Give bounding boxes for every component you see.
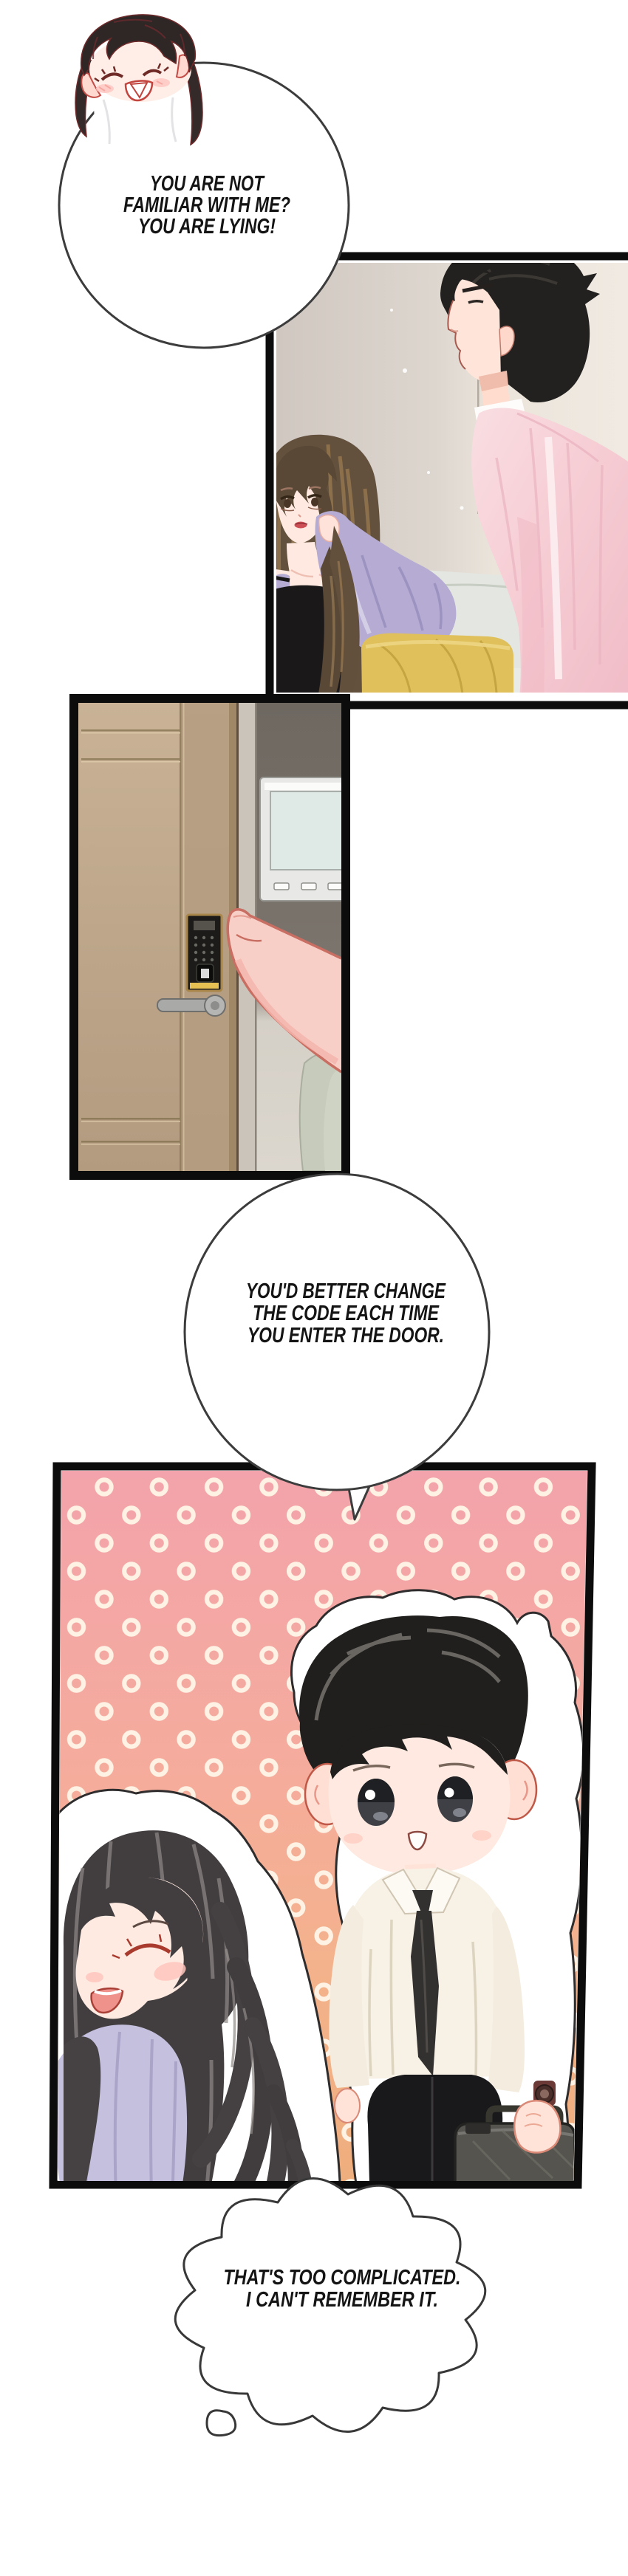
svg-text:THAT'S TOO COMPLICATED.: THAT'S TOO COMPLICATED.: [224, 2266, 461, 2290]
svg-text:YOU ARE LYING!: YOU ARE LYING!: [138, 215, 276, 238]
svg-text:THE CODE EACH TIME: THE CODE EACH TIME: [253, 1302, 440, 1325]
svg-text:I CAN'T REMEMBER IT.: I CAN'T REMEMBER IT.: [246, 2288, 438, 2312]
svg-text:YOU ENTER THE DOOR.: YOU ENTER THE DOOR.: [248, 1324, 444, 1347]
svg-text:YOU ARE NOT: YOU ARE NOT: [150, 172, 265, 196]
svg-text:FAMILIAR WITH ME?: FAMILIAR WITH ME?: [123, 193, 290, 217]
svg-text:YOU'D BETTER CHANGE: YOU'D BETTER CHANGE: [246, 1280, 446, 1303]
